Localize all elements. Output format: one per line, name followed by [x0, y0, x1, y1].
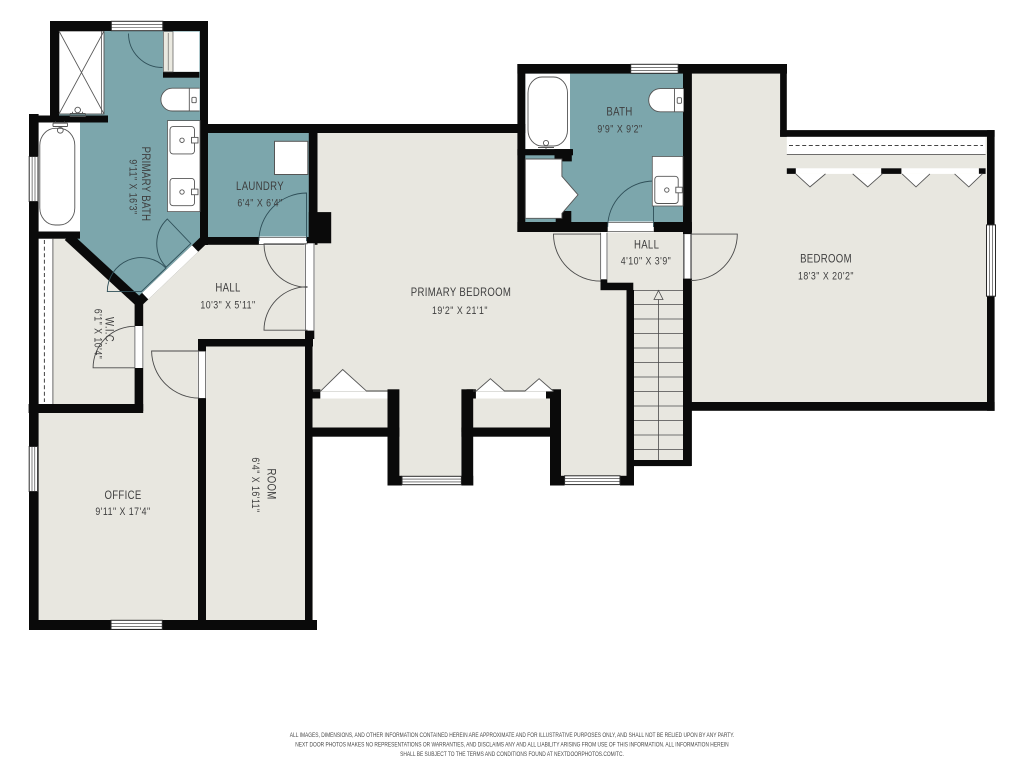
svg-text:ROOM: ROOM [264, 468, 277, 499]
svg-text:9'11" X 16'3": 9'11" X 16'3" [126, 159, 138, 214]
svg-text:OFFICE: OFFICE [104, 489, 141, 502]
svg-text:9'9" X 9'2": 9'9" X 9'2" [597, 124, 642, 136]
svg-text:SHALL BE SUBJECT TO THE TERMS: SHALL BE SUBJECT TO THE TERMS AND CONDIT… [400, 751, 624, 758]
svg-text:19'2" X 21'1": 19'2" X 21'1" [432, 305, 488, 317]
svg-text:10'3" X 5'11": 10'3" X 5'11" [200, 300, 255, 312]
svg-text:BATH: BATH [606, 106, 632, 119]
svg-text:BEDROOM: BEDROOM [800, 253, 852, 266]
svg-text:HALL: HALL [215, 282, 240, 295]
svg-text:HALL: HALL [634, 239, 659, 252]
svg-text:PRIMARY BATH: PRIMARY BATH [138, 147, 151, 222]
svg-text:18'3" X 20'2": 18'3" X 20'2" [798, 271, 854, 283]
svg-text:PRIMARY BEDROOM: PRIMARY BEDROOM [411, 286, 511, 299]
svg-text:ALL IMAGES, DIMENSIONS, AND OT: ALL IMAGES, DIMENSIONS, AND OTHER INFORM… [290, 732, 735, 739]
svg-text:LAUNDRY: LAUNDRY [236, 180, 284, 193]
svg-text:6'4" X 6'4": 6'4" X 6'4" [237, 197, 282, 209]
svg-text:6'1" X 10'4": 6'1" X 10'4" [91, 309, 103, 360]
svg-text:NEXT DOOR PHOTOS MAKES NO REPR: NEXT DOOR PHOTOS MAKES NO REPRESENTATION… [295, 742, 728, 749]
svg-text:6'4" X 16'11": 6'4" X 16'11" [248, 457, 260, 512]
svg-text:4'10" X 3'9": 4'10" X 3'9" [621, 256, 672, 268]
svg-text:9'11" X 17'4": 9'11" X 17'4" [95, 506, 150, 518]
